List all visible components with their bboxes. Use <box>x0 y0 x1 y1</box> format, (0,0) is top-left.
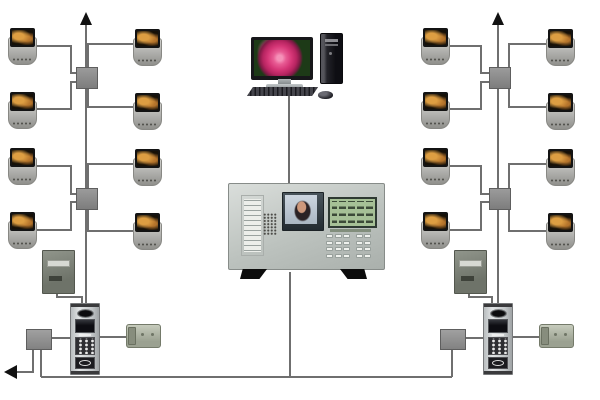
indoor-monitor-unit <box>546 149 575 185</box>
indoor-monitor-unit <box>133 29 162 65</box>
station-name-label <box>79 334 91 336</box>
junction-box <box>26 329 52 350</box>
monitor-screen <box>135 213 160 232</box>
station-card-reader <box>488 357 508 369</box>
monitor-buttons <box>137 179 157 182</box>
bus-continuation-arrow <box>4 365 17 379</box>
junction-box <box>440 329 466 350</box>
monitor-buttons <box>425 178 445 181</box>
monitor-buttons <box>550 243 570 246</box>
power-supply-vent <box>47 260 70 267</box>
power-supply-label <box>461 276 474 281</box>
station-speaker <box>77 309 94 318</box>
monitor-link-l2-outer <box>37 82 77 109</box>
station-top-cap <box>484 304 512 307</box>
monitor-screen <box>10 212 35 231</box>
pc-keyboard <box>247 87 318 96</box>
console-key <box>326 254 333 258</box>
monitor-buttons <box>137 59 157 62</box>
monitor-link-r3-inner <box>450 166 490 194</box>
monitor-screen <box>135 93 160 112</box>
pc-wallpaper-rose <box>254 40 310 76</box>
monitor-screen <box>423 92 448 111</box>
power-supply-unit <box>42 250 75 294</box>
left-junction-branch-out <box>16 348 33 372</box>
monitor-buttons <box>12 242 32 245</box>
console-key <box>326 234 333 238</box>
monitor-screen <box>548 93 573 112</box>
indoor-monitor-unit <box>546 29 575 65</box>
console-key <box>364 234 371 238</box>
console-key <box>335 247 342 251</box>
console-speaker-grille <box>263 213 277 235</box>
indoor-monitor-unit <box>421 212 450 248</box>
lock-mounting-plate <box>541 327 549 345</box>
console-key <box>343 254 350 258</box>
monitor-link-l4-outer <box>37 202 77 230</box>
lock-screw <box>564 333 567 336</box>
console-key <box>356 241 363 245</box>
station-card-reader <box>75 357 95 369</box>
power-supply-label <box>49 276 62 281</box>
monitor-link-l2-inner <box>88 86 133 107</box>
riser-continuation-arrow-right <box>492 12 504 25</box>
console-key <box>356 247 363 251</box>
console-keypad-row <box>326 234 376 238</box>
station-keypad <box>75 337 95 355</box>
monitor-screen <box>10 92 35 111</box>
station-bottom-cap <box>71 371 99 374</box>
pc-drive-bay <box>325 44 338 46</box>
lock-screw <box>554 333 557 336</box>
power-supply-vent <box>459 260 482 267</box>
station-name-label <box>492 334 504 336</box>
lock-screw <box>141 333 144 336</box>
monitor-screen <box>548 29 573 48</box>
console-directory-label <box>241 195 264 256</box>
indoor-monitor-unit <box>546 213 575 249</box>
distribution-splitter-box <box>489 67 511 89</box>
console-key <box>343 247 350 251</box>
distribution-splitter-box <box>489 188 511 210</box>
station-keypad <box>488 337 508 355</box>
monitor-buttons <box>137 243 157 246</box>
monitor-screen <box>10 28 35 47</box>
monitor-buttons <box>12 178 32 181</box>
monitor-buttons <box>550 179 570 182</box>
outdoor-door-station <box>70 303 100 375</box>
monitor-screen <box>10 148 35 167</box>
console-foot-right <box>340 269 367 279</box>
outdoor-door-station <box>483 303 513 375</box>
lock-mounting-plate <box>128 327 136 345</box>
indoor-monitor-unit <box>546 93 575 129</box>
pc-drive-bay <box>325 39 338 42</box>
monitor-link-r4-outer <box>509 206 546 231</box>
monitor-link-r1-inner <box>450 46 490 73</box>
monitor-link-l3-outer <box>37 166 77 194</box>
intercom-riser-diagram <box>0 0 600 400</box>
console-keypad-row <box>326 241 376 245</box>
indoor-monitor-unit <box>133 149 162 185</box>
station-top-cap <box>71 304 99 307</box>
monitor-screen <box>423 212 448 231</box>
management-center-console <box>228 183 385 280</box>
console-keypad <box>326 234 376 262</box>
monitor-link-l3-inner <box>88 164 133 189</box>
monitor-buttons <box>12 122 32 125</box>
console-key <box>364 247 371 251</box>
indoor-monitor-unit <box>133 93 162 129</box>
pc-tower <box>320 33 343 84</box>
distribution-splitter-box <box>76 188 98 210</box>
monitor-screen <box>135 149 160 168</box>
console-lcd-display <box>328 197 377 228</box>
monitor-link-r2-outer <box>509 86 546 107</box>
visitor-photo <box>285 195 317 224</box>
monitor-link-l1-inner <box>88 44 133 68</box>
indoor-monitor-unit <box>8 148 37 184</box>
pc-power-button <box>329 52 332 55</box>
console-key <box>364 241 371 245</box>
station-speaker <box>490 309 507 318</box>
monitor-buttons <box>12 58 32 61</box>
monitor-link-l1-outer <box>37 46 77 73</box>
station-bottom-cap <box>484 371 512 374</box>
indoor-monitor-unit <box>421 148 450 184</box>
monitor-link-r2-inner <box>450 82 490 109</box>
monitor-screen <box>423 28 448 47</box>
electric-door-lock <box>126 324 161 348</box>
monitor-screen <box>135 29 160 48</box>
riser-continuation-arrow-left <box>80 12 92 25</box>
console-key <box>364 254 371 258</box>
indoor-monitor-unit <box>8 212 37 248</box>
console-key <box>326 241 333 245</box>
console-key <box>335 234 342 238</box>
lock-screw <box>151 333 154 336</box>
monitor-buttons <box>550 59 570 62</box>
console-housing <box>228 183 385 270</box>
monitor-screen <box>548 149 573 168</box>
monitor-link-r3-outer <box>509 164 546 189</box>
console-key <box>356 254 363 258</box>
monitor-buttons <box>425 122 445 125</box>
monitor-link-r4-inner <box>450 202 490 230</box>
indoor-monitor-unit <box>8 92 37 128</box>
console-keypad-row <box>326 247 376 251</box>
station-camera-display <box>488 319 508 333</box>
station-camera-display <box>75 319 95 333</box>
console-keypad-row <box>326 254 376 258</box>
indoor-monitor-unit <box>8 28 37 64</box>
monitor-buttons <box>425 242 445 245</box>
monitor-buttons <box>137 123 157 126</box>
distribution-splitter-box <box>76 67 98 89</box>
indoor-monitor-unit <box>421 28 450 64</box>
console-video-display <box>282 192 324 231</box>
pc-mouse <box>318 91 333 99</box>
electric-door-lock <box>539 324 574 348</box>
monitor-link-r1-outer <box>509 44 546 68</box>
console-key <box>335 254 342 258</box>
console-key <box>343 234 350 238</box>
pc-monitor <box>251 37 313 80</box>
indoor-monitor-unit <box>421 92 450 128</box>
monitor-screen <box>548 213 573 232</box>
console-key <box>356 234 363 238</box>
console-key <box>343 241 350 245</box>
console-lcd-caption <box>330 229 371 232</box>
console-key <box>335 241 342 245</box>
monitor-buttons <box>550 123 570 126</box>
monitor-buttons <box>425 58 445 61</box>
indoor-monitor-unit <box>133 213 162 249</box>
console-key <box>326 247 333 251</box>
power-supply-unit <box>454 250 487 294</box>
monitor-screen <box>423 148 448 167</box>
console-foot-left <box>240 269 267 279</box>
